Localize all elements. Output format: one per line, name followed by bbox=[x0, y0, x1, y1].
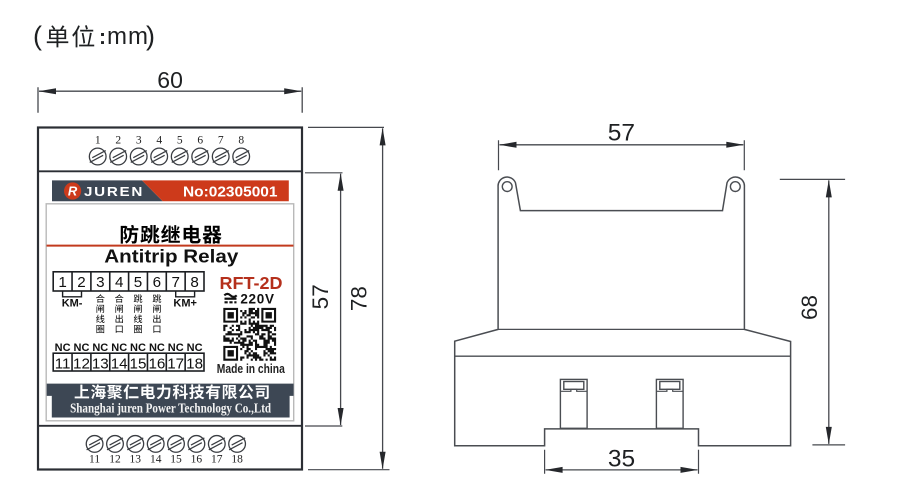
svg-text:3: 3 bbox=[136, 135, 142, 147]
svg-text:KM+: KM+ bbox=[173, 298, 197, 310]
svg-text:2: 2 bbox=[115, 135, 121, 147]
svg-text:17: 17 bbox=[211, 453, 223, 465]
svg-text:18: 18 bbox=[186, 355, 203, 372]
svg-text:8: 8 bbox=[238, 135, 244, 147]
svg-text:57: 57 bbox=[608, 119, 635, 146]
svg-text:mm: mm bbox=[107, 23, 149, 50]
svg-text:(: ( bbox=[33, 21, 42, 51]
svg-text:RFT-2D: RFT-2D bbox=[220, 273, 283, 293]
svg-text:1: 1 bbox=[95, 135, 101, 147]
svg-text:Antitrip Relay: Antitrip Relay bbox=[104, 246, 239, 267]
svg-text:15: 15 bbox=[170, 453, 182, 465]
svg-text:6: 6 bbox=[197, 135, 203, 147]
svg-text:Shanghai juren Power Technolog: Shanghai juren Power Technology Co.,Ltd bbox=[70, 401, 272, 416]
svg-text:16: 16 bbox=[148, 355, 165, 372]
svg-text:13: 13 bbox=[130, 453, 142, 465]
svg-text:12: 12 bbox=[109, 453, 121, 465]
svg-text:13: 13 bbox=[92, 355, 109, 372]
svg-text:5: 5 bbox=[177, 135, 183, 147]
svg-text:7: 7 bbox=[218, 135, 224, 147]
svg-text:5: 5 bbox=[134, 274, 142, 291]
svg-text:60: 60 bbox=[157, 67, 183, 93]
svg-text:14: 14 bbox=[111, 355, 128, 372]
svg-text:): ) bbox=[146, 21, 155, 51]
svg-text:15: 15 bbox=[130, 355, 147, 372]
svg-text:JUREN: JUREN bbox=[84, 185, 144, 199]
svg-text:KM-: KM- bbox=[62, 298, 83, 310]
svg-text:18: 18 bbox=[231, 453, 243, 465]
svg-text:No:02305001: No:02305001 bbox=[183, 184, 278, 200]
svg-text:1: 1 bbox=[58, 274, 66, 291]
svg-text::: : bbox=[99, 26, 106, 49]
svg-text:7: 7 bbox=[171, 274, 179, 291]
svg-text:R: R bbox=[68, 184, 78, 199]
svg-text:Made in china: Made in china bbox=[217, 361, 286, 376]
svg-text:11: 11 bbox=[55, 355, 71, 372]
svg-text:3: 3 bbox=[96, 274, 104, 291]
svg-text:68: 68 bbox=[797, 295, 822, 320]
svg-text:17: 17 bbox=[167, 355, 184, 372]
svg-text:16: 16 bbox=[191, 453, 203, 465]
svg-text:4: 4 bbox=[156, 135, 162, 147]
svg-text:35: 35 bbox=[608, 446, 635, 473]
svg-text:12: 12 bbox=[73, 355, 90, 372]
svg-text:8: 8 bbox=[190, 274, 198, 291]
svg-text:57: 57 bbox=[308, 284, 333, 309]
svg-text:78: 78 bbox=[346, 286, 371, 311]
svg-text:220V: 220V bbox=[240, 291, 274, 306]
svg-text:14: 14 bbox=[150, 453, 162, 465]
svg-text:4: 4 bbox=[115, 274, 123, 291]
svg-text:11: 11 bbox=[89, 453, 100, 465]
svg-text:6: 6 bbox=[153, 274, 161, 291]
svg-text:2: 2 bbox=[77, 274, 85, 291]
